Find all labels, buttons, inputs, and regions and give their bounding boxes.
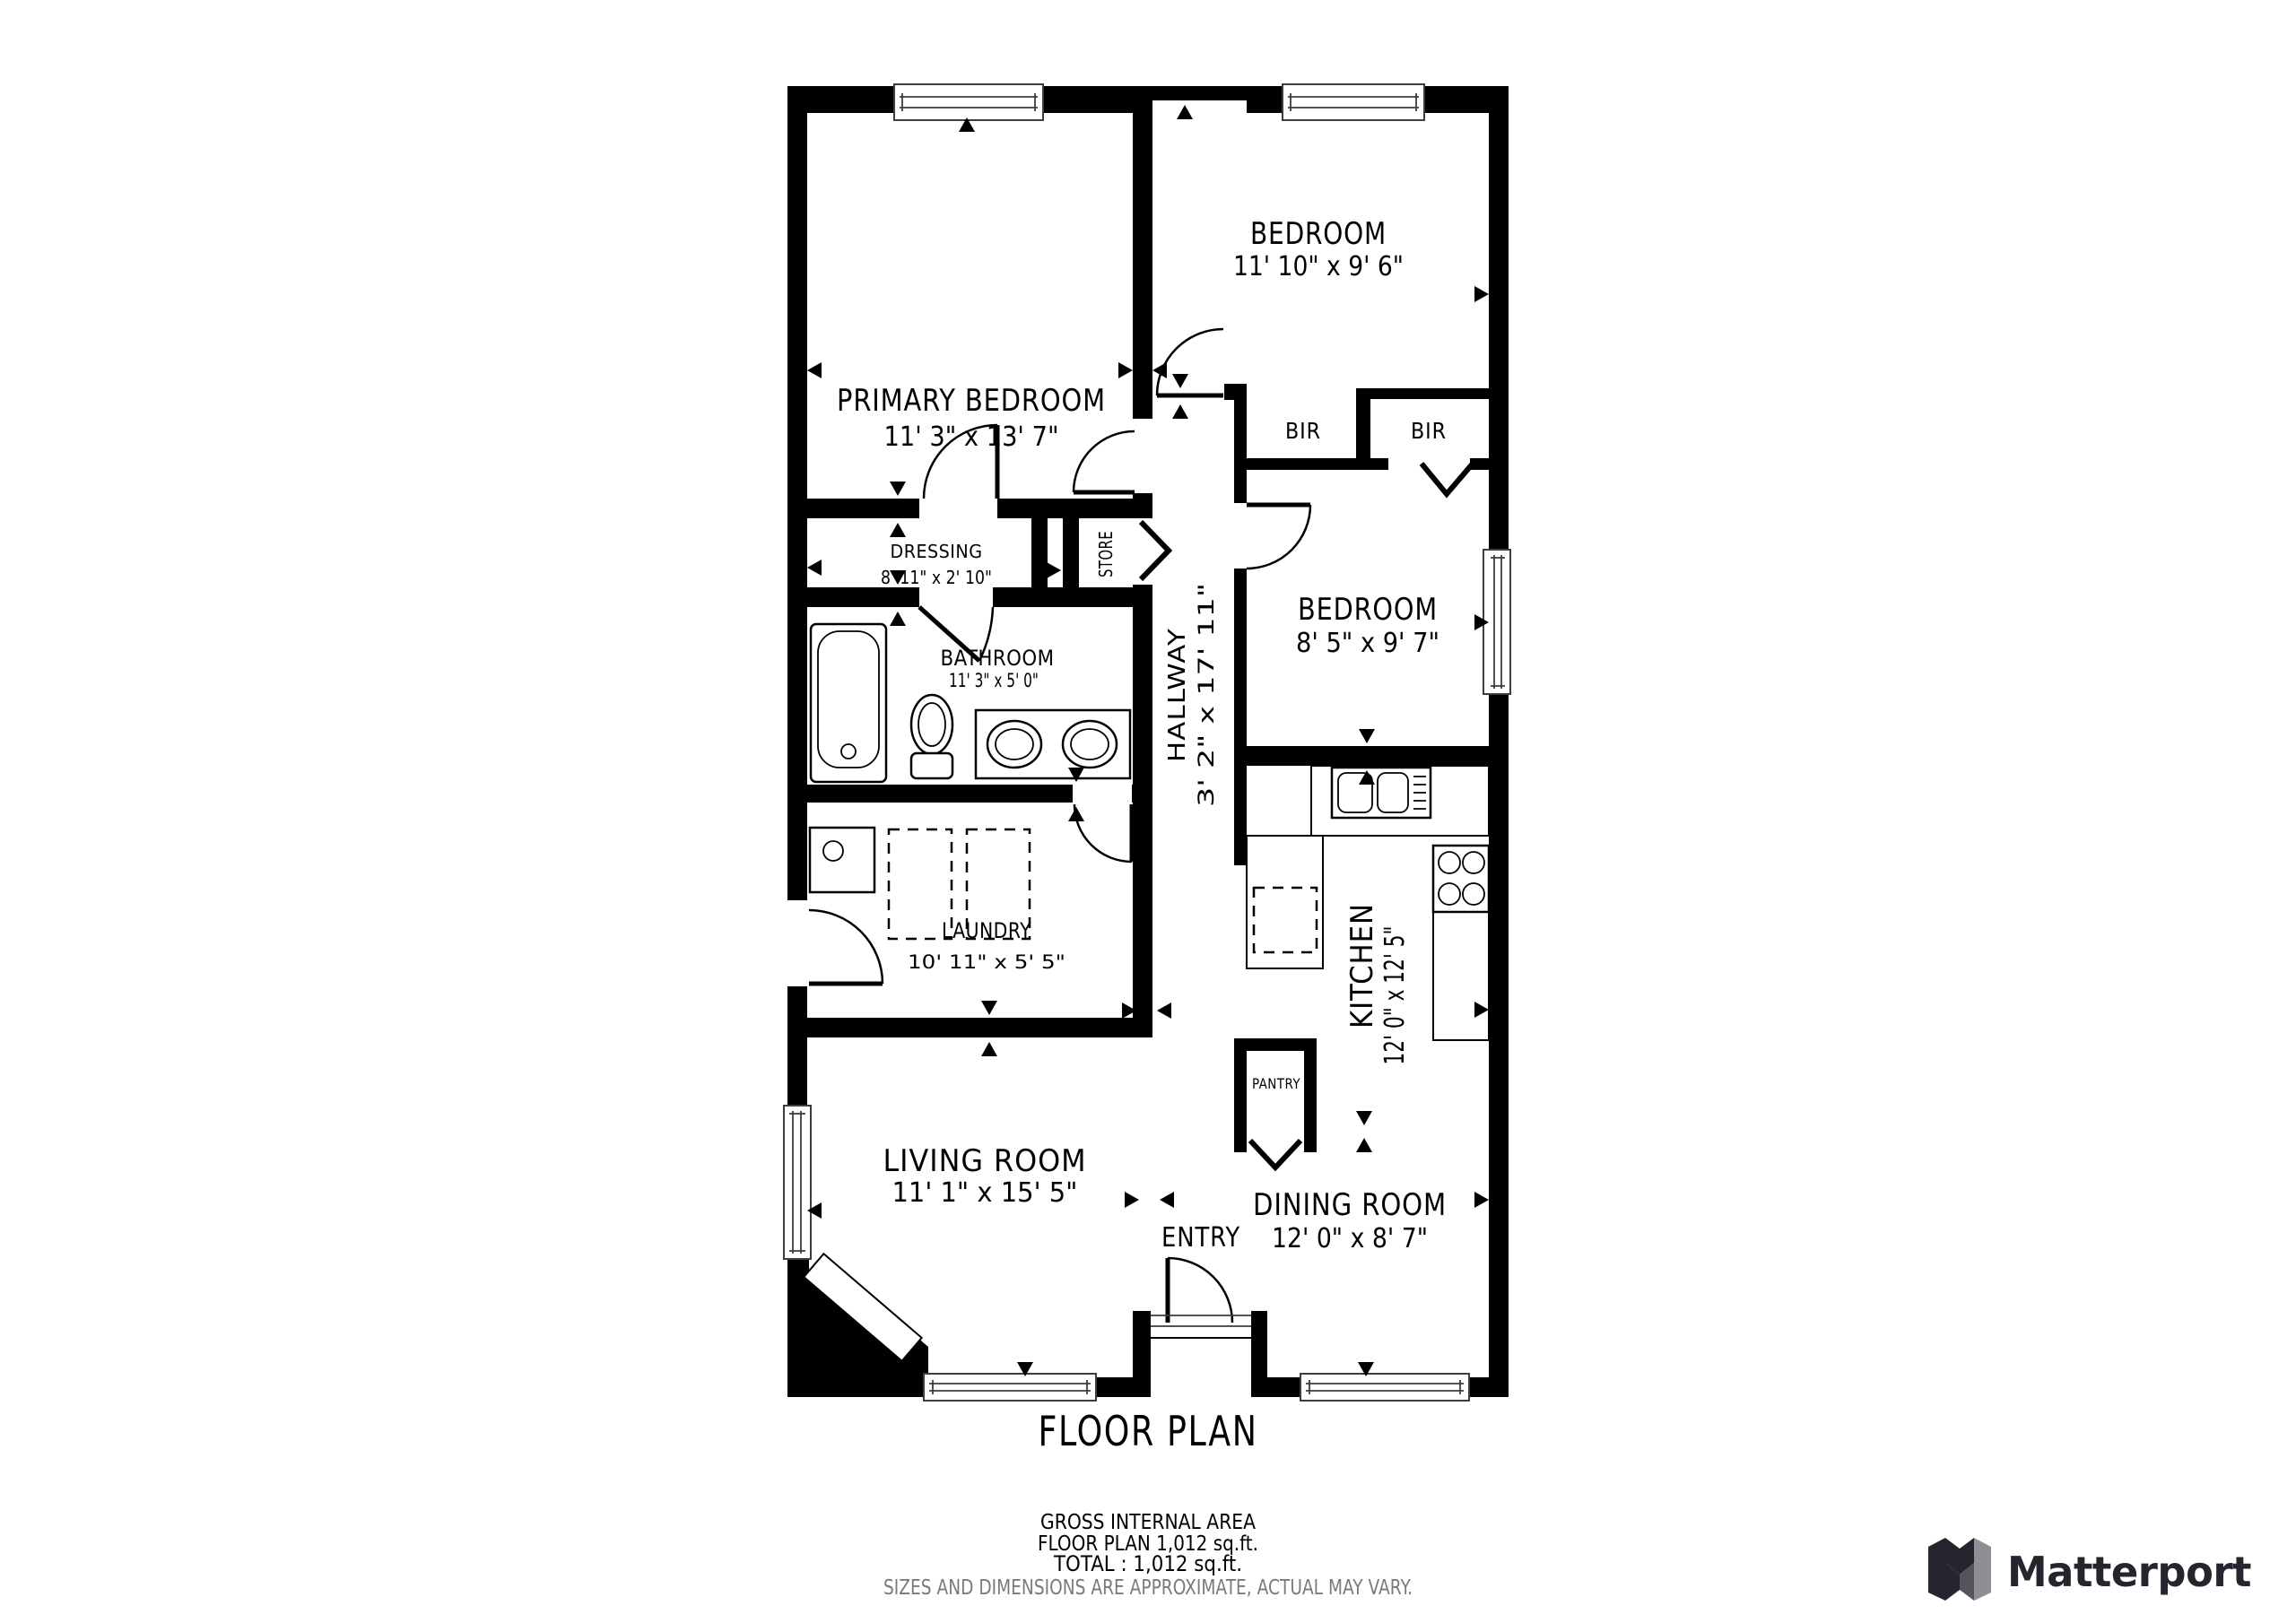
- window-bedroom-top: [1283, 84, 1424, 120]
- footer: FLOOR PLAN GROSS INTERNAL AREA FLOOR PLA…: [883, 1407, 1413, 1600]
- dims-dining-room: 12' 0" x 8' 7": [1272, 1223, 1428, 1254]
- window-living-bottom: [924, 1374, 1096, 1401]
- label-bedroom-top: BEDROOM: [1250, 216, 1387, 252]
- dims-primary-bedroom: 11' 3" x 13' 7": [884, 421, 1059, 453]
- laundry-sink: [810, 828, 874, 892]
- pantry-bifold-door: [1250, 1141, 1300, 1167]
- primary-bedroom-door: [1074, 431, 1135, 492]
- label-bedroom-mid: BEDROOM: [1298, 592, 1438, 628]
- label-dressing: DRESSING: [891, 541, 983, 562]
- matterport-wordmark: Matterport: [2007, 1548, 2251, 1596]
- corner-fireplace: [787, 1249, 928, 1397]
- label-bir-right: BIR: [1411, 418, 1447, 444]
- floor-plan-drawing: PRIMARY BEDROOM 11' 3" x 13' 7" BEDROOM …: [0, 0, 2296, 1623]
- dims-kitchen: 12' 0" x 12' 5": [1379, 926, 1411, 1065]
- window-primary-top: [894, 84, 1043, 120]
- laundry-hall-door: [1074, 804, 1132, 862]
- label-entry: ENTRY: [1161, 1222, 1240, 1254]
- page-title: FLOOR PLAN: [1039, 1407, 1258, 1455]
- dims-laundry: 10' 11" x 5' 5": [908, 951, 1065, 973]
- window-living-left: [784, 1106, 811, 1259]
- footer-disclaimer: SIZES AND DIMENSIONS ARE APPROXIMATE, AC…: [883, 1576, 1413, 1600]
- bathtub: [811, 624, 886, 782]
- window-dining-bottom: [1300, 1374, 1469, 1401]
- entry-door: [1168, 1258, 1232, 1323]
- bedroom-mid-door: [1247, 505, 1310, 568]
- footer-area-heading: GROSS INTERNAL AREA: [1040, 1511, 1256, 1534]
- kitchen-counter-right: [1433, 912, 1489, 1040]
- label-hallway: HALLWAY: [1164, 628, 1191, 762]
- label-pantry: PANTRY: [1252, 1075, 1300, 1092]
- label-bathroom: BATHROOM: [941, 646, 1055, 671]
- bir-right-bifold-door: [1422, 464, 1473, 494]
- label-primary-bedroom: PRIMARY BEDROOM: [837, 383, 1106, 419]
- kitchen-sink: [1332, 768, 1431, 818]
- dims-bathroom: 11' 3" x 5' 0": [949, 670, 1039, 691]
- dims-living-room: 11' 1" x 15' 5": [892, 1177, 1078, 1209]
- dims-bedroom-mid: 8' 5" x 9' 7": [1296, 628, 1439, 659]
- dims-hallway: 3' 2" x 17' 11": [1194, 583, 1219, 807]
- double-vanity: [976, 710, 1130, 778]
- store-bifold-door: [1141, 522, 1169, 579]
- label-dining-room: DINING ROOM: [1253, 1187, 1447, 1223]
- footer-total-line: TOTAL : 1,012 sq.ft.: [1053, 1551, 1242, 1576]
- toilet: [911, 695, 952, 778]
- dims-bedroom-top: 11' 10" x 9' 6": [1233, 251, 1404, 282]
- matterport-logo: Matterport: [1928, 1538, 2251, 1601]
- floor-plan-page: PRIMARY BEDROOM 11' 3" x 13' 7" BEDROOM …: [0, 0, 2296, 1623]
- label-kitchen: KITCHEN: [1344, 903, 1380, 1028]
- label-bir-left: BIR: [1285, 418, 1321, 444]
- dims-dressing: 8' 11" x 2' 10": [881, 567, 992, 588]
- matterport-m-icon: [1928, 1538, 1991, 1601]
- bedroom-top-door: [1157, 329, 1223, 395]
- label-store: STORE: [1095, 531, 1117, 577]
- label-laundry: LAUNDRY: [942, 918, 1031, 943]
- laundry-exterior-door: [809, 910, 883, 984]
- dishwasher-outline: [1254, 888, 1317, 952]
- stove: [1433, 846, 1489, 912]
- kitchen-counter-left: [1247, 836, 1323, 968]
- label-living-room: LIVING ROOM: [883, 1143, 1087, 1179]
